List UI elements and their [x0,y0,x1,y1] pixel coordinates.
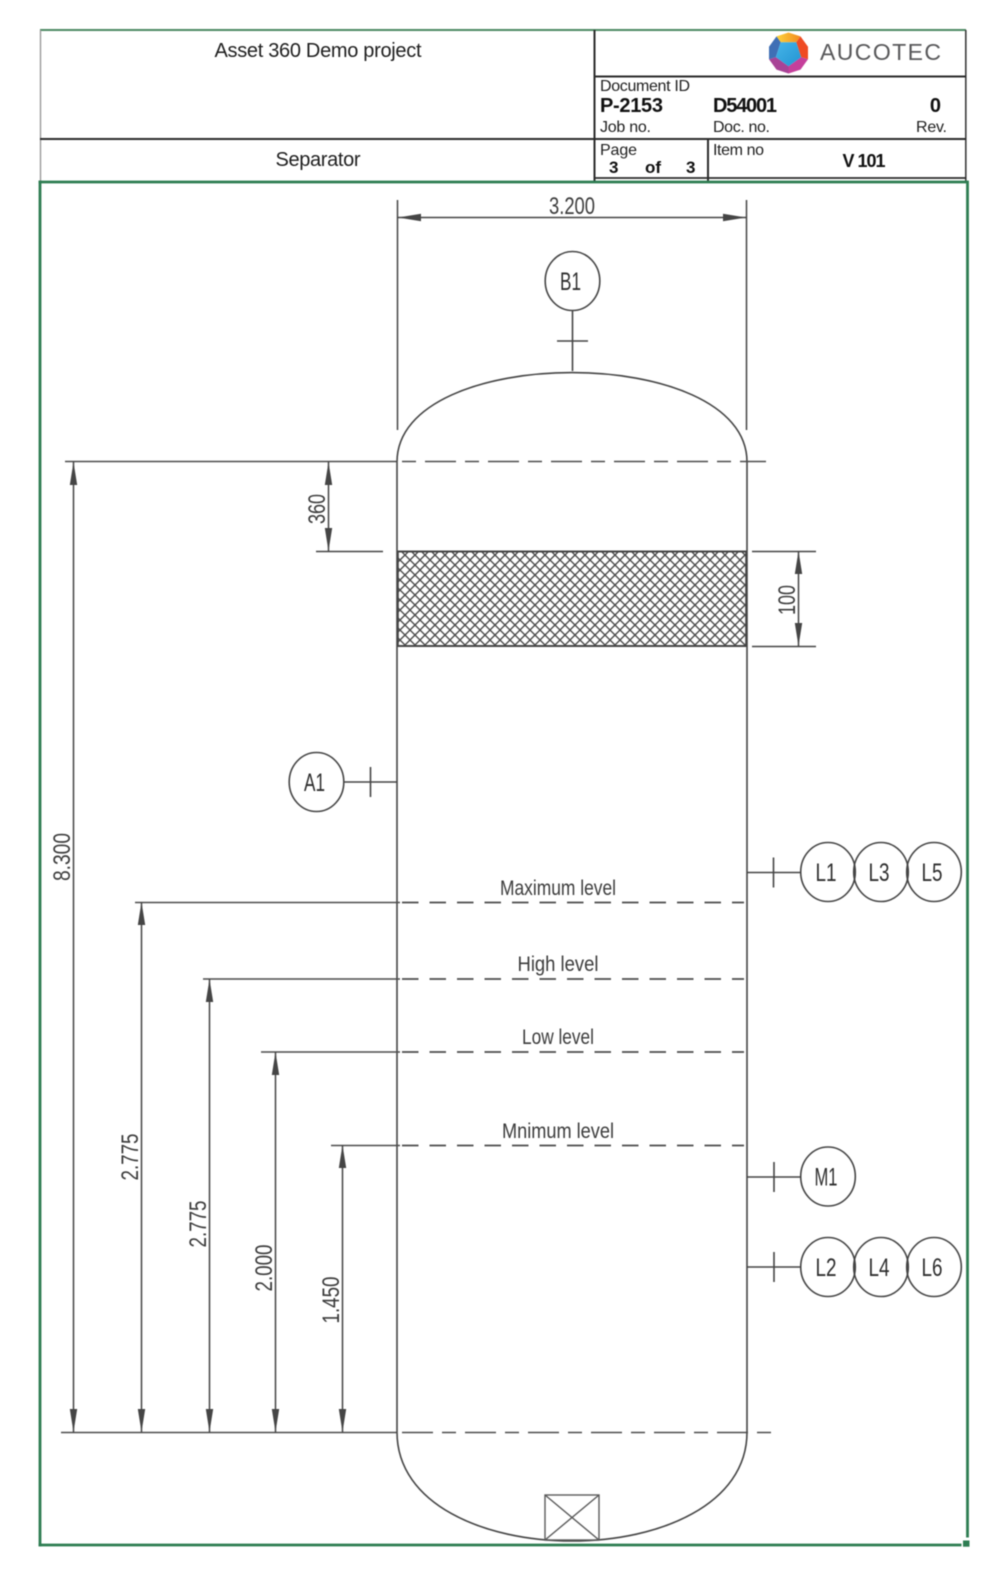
svg-text:B1: B1 [560,268,581,296]
svg-text:Page: Page [600,142,637,159]
svg-text:Rev.: Rev. [916,119,947,136]
svg-text:Low level: Low level [522,1026,594,1049]
svg-text:L4: L4 [869,1254,890,1282]
svg-text:Mnimum level: Mnimum level [502,1120,614,1143]
svg-text:2.775: 2.775 [185,1201,212,1248]
svg-text:Separator: Separator [276,149,361,171]
svg-text:3: 3 [686,158,695,177]
svg-text:3: 3 [609,158,618,177]
svg-text:M1: M1 [815,1164,838,1192]
svg-text:L3: L3 [869,859,890,887]
svg-text:2.775: 2.775 [117,1134,144,1181]
svg-text:of: of [645,158,661,177]
svg-text:P-2153: P-2153 [600,95,663,117]
svg-text:L2: L2 [816,1254,837,1282]
svg-text:8.300: 8.300 [49,833,76,881]
svg-text:Job no.: Job no. [600,119,651,136]
svg-text:AUCOTEC: AUCOTEC [820,39,943,65]
svg-text:A1: A1 [304,769,325,797]
svg-text:L6: L6 [922,1254,943,1282]
svg-text:Item no: Item no [713,142,764,159]
svg-text:100: 100 [774,585,801,615]
svg-text:1.450: 1.450 [318,1277,345,1324]
svg-text:D54001: D54001 [713,95,777,117]
svg-text:0: 0 [930,95,941,117]
svg-text:Document ID: Document ID [600,78,690,95]
svg-text:2.000: 2.000 [251,1245,278,1292]
svg-text:V 101: V 101 [843,151,886,171]
svg-text:Asset 360 Demo project: Asset 360 Demo project [215,40,422,62]
svg-text:High level: High level [518,953,599,976]
svg-text:Maximum level: Maximum level [500,877,616,900]
svg-text:Doc. no.: Doc. no. [713,119,770,136]
svg-text:L1: L1 [816,859,837,887]
svg-text:L5: L5 [922,859,943,887]
svg-text:360: 360 [304,494,331,524]
svg-text:3.200: 3.200 [549,193,595,220]
